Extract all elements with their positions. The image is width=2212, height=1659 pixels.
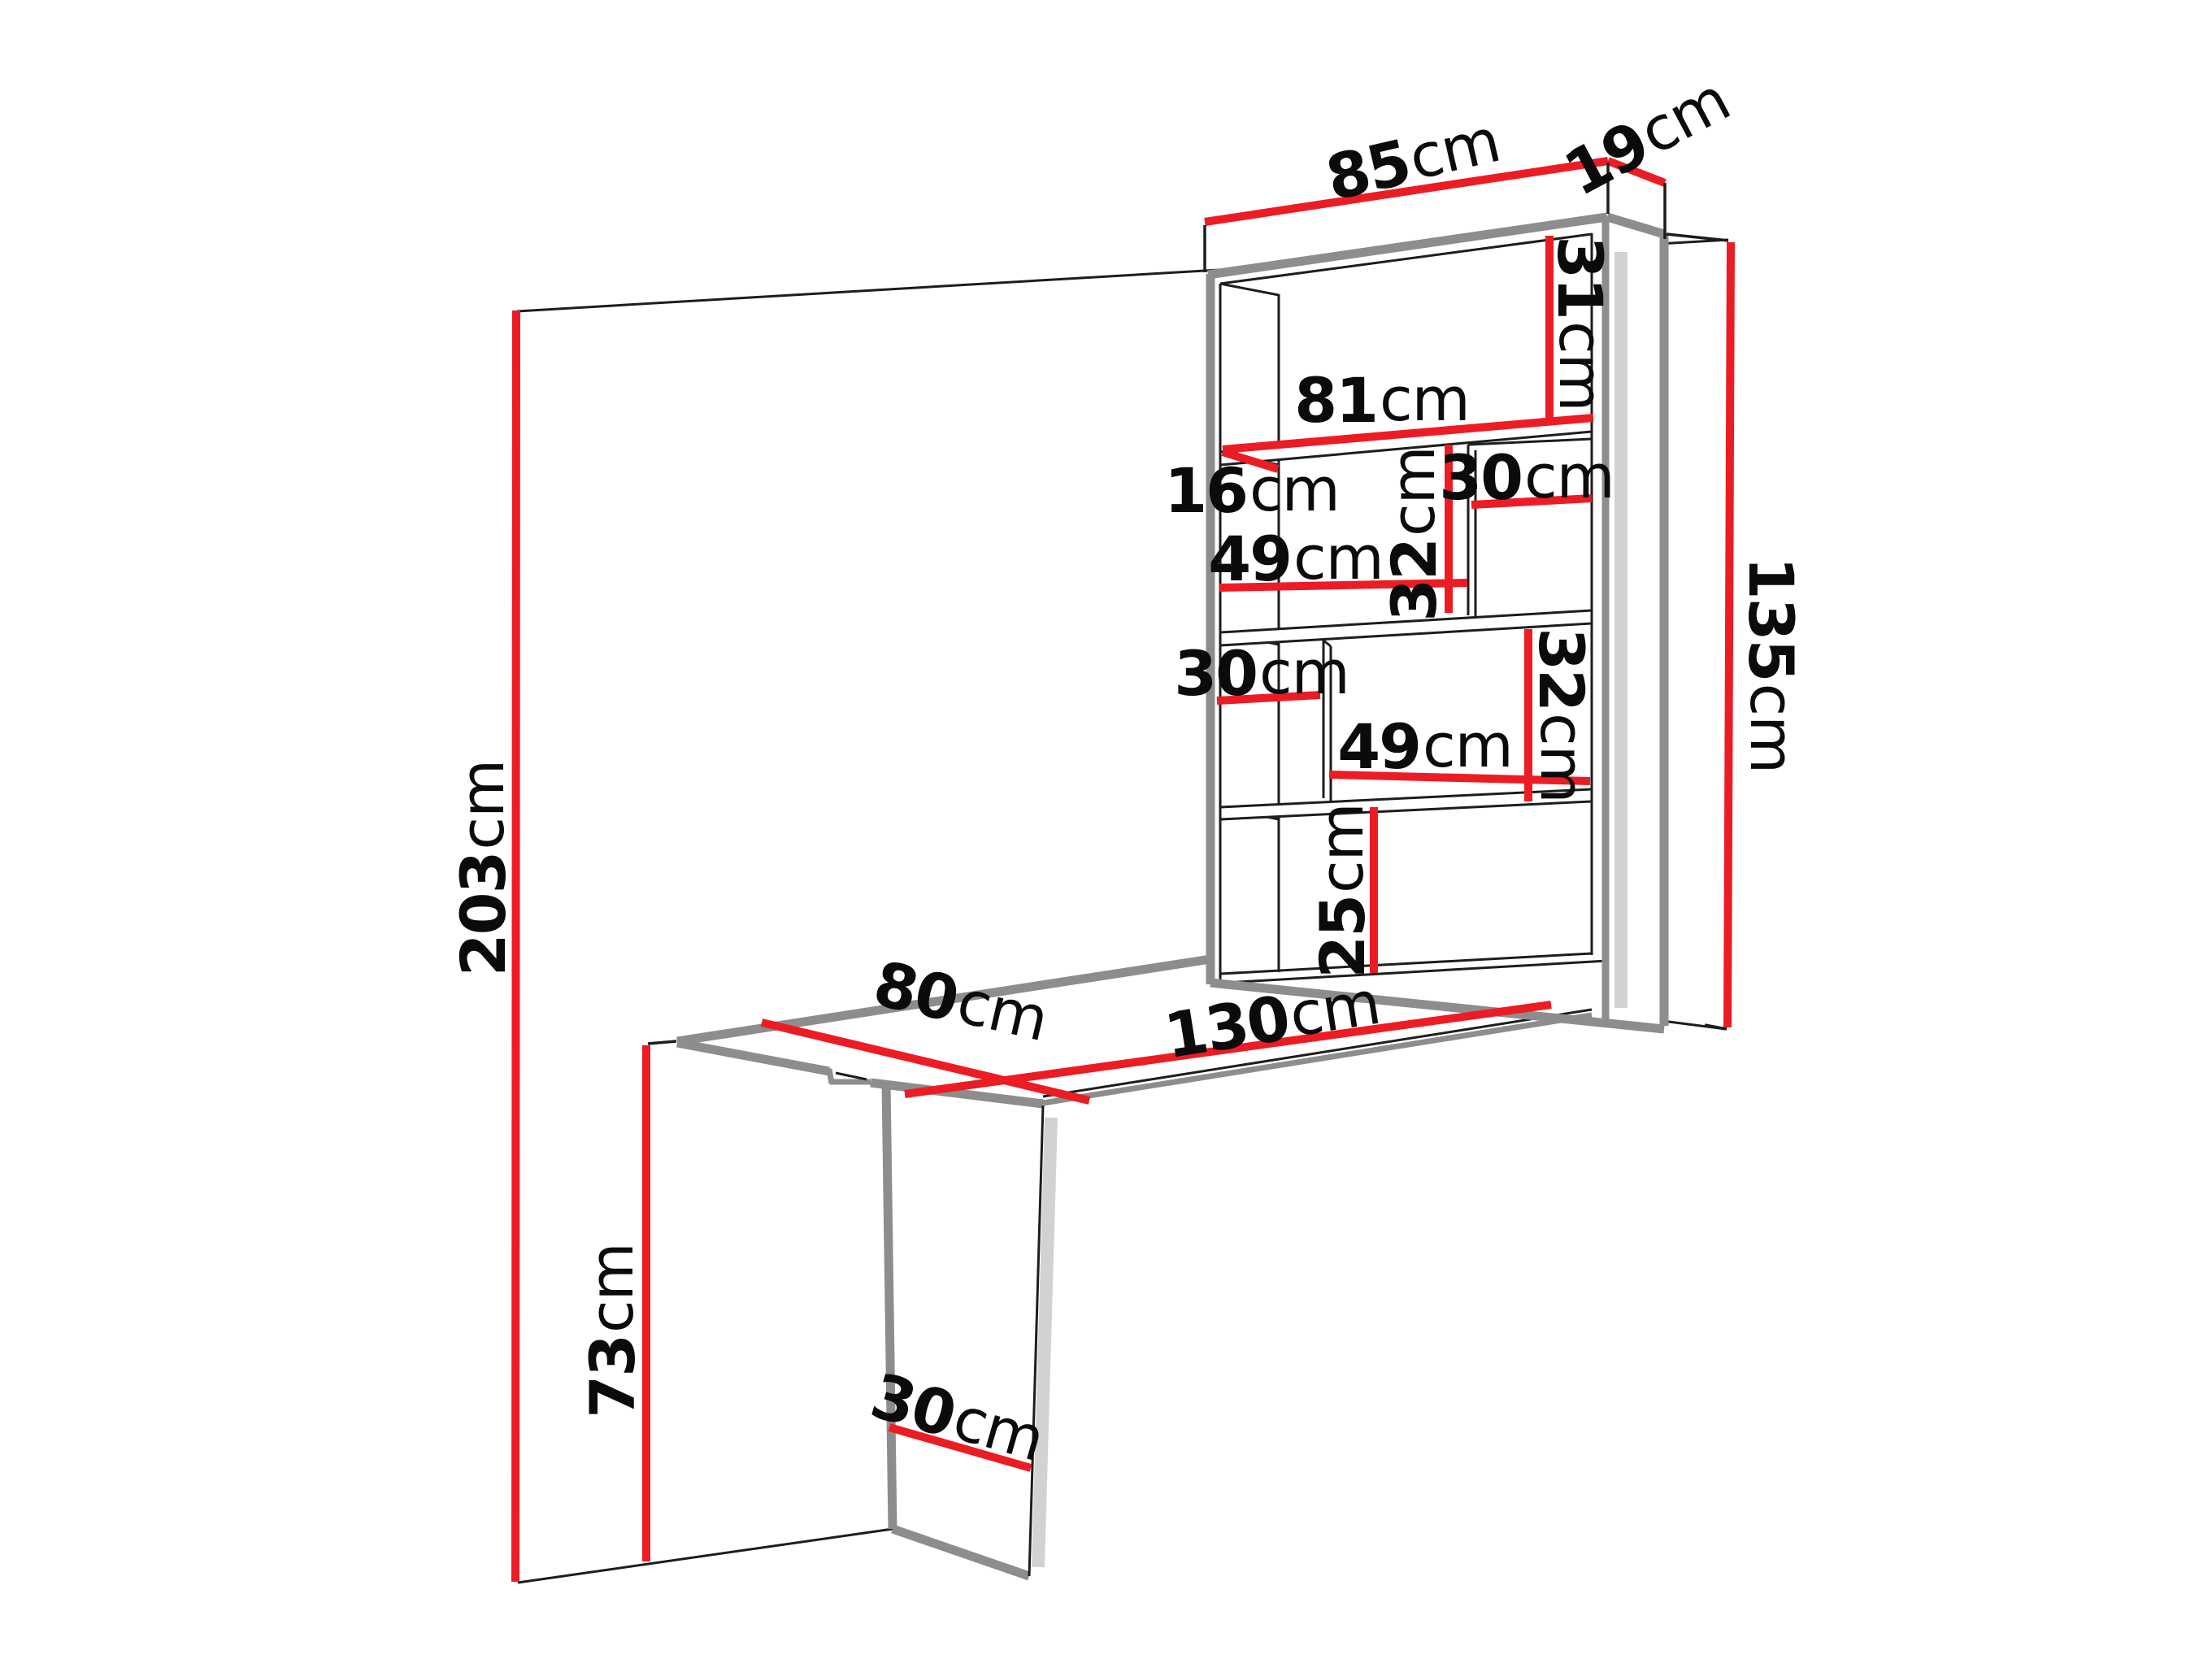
dim-label-row2-height: 32cm: [1378, 446, 1450, 622]
desk-leg-panel: [886, 1084, 1043, 1576]
dim-label-row1-height: 31cm: [1545, 236, 1617, 411]
dim-label-cabinet-height: 135cm: [1736, 557, 1808, 773]
dim-label-text-row2-height: 32cm: [1378, 446, 1450, 622]
dim-label-row3-right-width: 49cm: [1337, 710, 1513, 783]
dim-label-text-total-height: 203cm: [447, 760, 519, 976]
dim-label-text-cabinet-depth-top: 19cm: [1553, 63, 1741, 210]
dim-label-row3-height: 32cm: [1526, 628, 1598, 803]
dim-label-text-cabinet-width-top: 85cm: [1319, 104, 1506, 214]
dim-label-text-desk-height: 73cm: [576, 1243, 649, 1418]
dim-label-row4-height: 25cm: [1306, 803, 1379, 979]
dim-label-row2-open-width: 49cm: [1208, 523, 1384, 595]
dim-label-text-row3-height: 32cm: [1526, 628, 1598, 803]
tick-135-top: [1667, 234, 1728, 241]
dim-label-text-row3-left-width: 30cm: [1174, 637, 1349, 710]
dim-label-inner-width: 81cm: [1294, 364, 1470, 436]
dim-label-shelf-depth: 16cm: [1164, 454, 1340, 527]
diagram-canvas: 85cm19cm31cm81cm16cm30cm32cm49cm30cm49cm…: [0, 0, 2212, 1659]
dim-label-total-height: 203cm: [447, 760, 519, 976]
dim-135cm: [1727, 242, 1731, 1027]
dim-label-text-row1-height: 31cm: [1545, 236, 1617, 411]
dim-label-cubby-width: 30cm: [1439, 441, 1614, 514]
dim-label-desk-height: 73cm: [576, 1243, 649, 1418]
dim-label-text-inner-width: 81cm: [1294, 364, 1470, 436]
dim-label-text-row4-height: 25cm: [1306, 803, 1379, 979]
dim-label-text-cabinet-height: 135cm: [1736, 557, 1808, 773]
dim-label-text-cubby-width: 30cm: [1439, 441, 1614, 514]
dim-label-text-row3-right-width: 49cm: [1337, 710, 1513, 783]
dim-label-row3-left-width: 30cm: [1174, 637, 1349, 710]
dim-label-text-shelf-depth: 16cm: [1164, 454, 1340, 527]
dim-label-cabinet-width-top: 85cm: [1319, 104, 1506, 214]
tick-73-top: [648, 1041, 676, 1044]
dim-label-text-row2-open-width: 49cm: [1208, 523, 1384, 595]
dim-label-cabinet-depth-top: 19cm: [1553, 63, 1741, 210]
floor-edge-left: [518, 1529, 893, 1583]
furniture-dimension-diagram: 85cm19cm31cm81cm16cm30cm32cm49cm30cm49cm…: [0, 0, 2212, 1659]
tick-135-bottom: [1705, 1025, 1727, 1029]
